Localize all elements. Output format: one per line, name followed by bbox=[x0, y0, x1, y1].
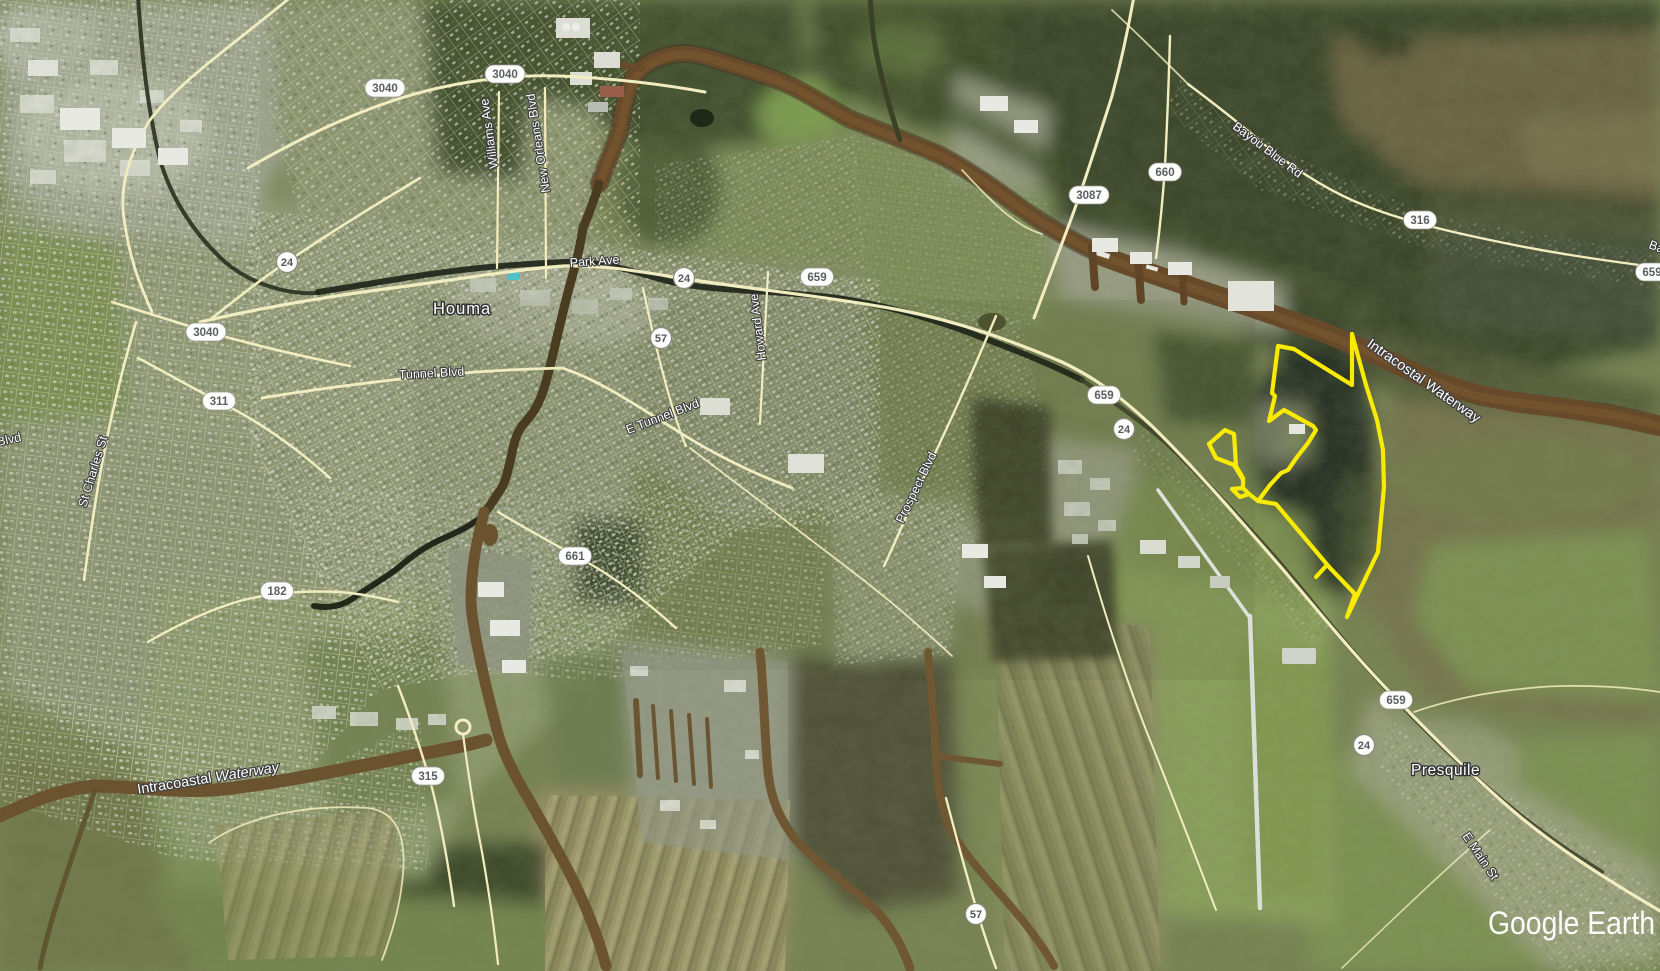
svg-text:24: 24 bbox=[1358, 740, 1371, 752]
svg-text:3040: 3040 bbox=[492, 69, 518, 81]
svg-text:Houma: Houma bbox=[433, 300, 491, 318]
svg-text:Presquile: Presquile bbox=[1411, 762, 1480, 779]
svg-text:311: 311 bbox=[210, 396, 229, 408]
svg-text:24: 24 bbox=[281, 257, 294, 269]
svg-text:659: 659 bbox=[1094, 390, 1113, 402]
svg-text:182: 182 bbox=[267, 586, 286, 598]
svg-text:3087: 3087 bbox=[1076, 190, 1102, 202]
svg-text:24: 24 bbox=[678, 273, 691, 285]
svg-text:659: 659 bbox=[807, 272, 826, 284]
svg-text:659: 659 bbox=[1386, 695, 1405, 707]
svg-text:659: 659 bbox=[1642, 267, 1660, 279]
svg-text:316: 316 bbox=[1410, 215, 1429, 227]
svg-text:3040: 3040 bbox=[372, 83, 398, 95]
svg-text:57: 57 bbox=[970, 909, 982, 921]
svg-text:57: 57 bbox=[655, 333, 667, 345]
svg-text:Google Earth: Google Earth bbox=[1488, 905, 1655, 941]
svg-text:661: 661 bbox=[565, 551, 585, 563]
svg-text:24: 24 bbox=[1118, 424, 1131, 436]
svg-text:660: 660 bbox=[1155, 167, 1174, 179]
svg-text:3040: 3040 bbox=[193, 327, 219, 339]
svg-text:315: 315 bbox=[418, 771, 438, 783]
